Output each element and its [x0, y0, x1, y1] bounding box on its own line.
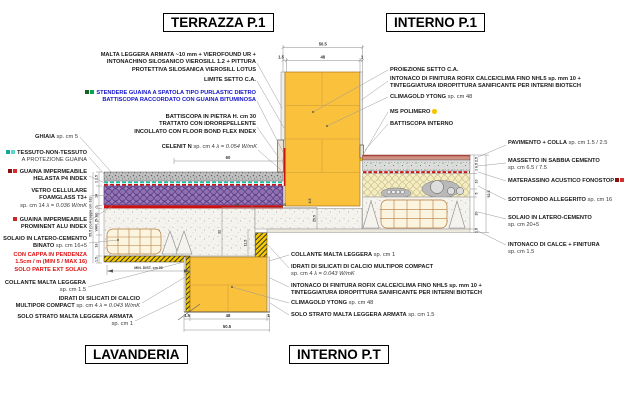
pipe: [456, 187, 463, 194]
label-idrati-pt: IDRATI DI SILICATI DI CALCIO MULTIPOR CO…: [291, 264, 433, 279]
dim-left-b: 14: [95, 194, 99, 198]
label-stendere-guaina: STENDERE GUAINA A SPATOLA TIPO PURLASTIC…: [85, 90, 256, 105]
ytong-wall-lower: [190, 257, 267, 312]
green-marker-icon: [85, 90, 89, 94]
label-intonaco-finitura-p1: INTONACO DI FINITURA ROFIX CALCE/CLIMA F…: [390, 76, 581, 91]
label-climagold-pt: CLIMAGOLD YTONG sp. cm 48: [291, 300, 373, 307]
dim-slab-f: 4.5: [308, 199, 312, 204]
multipor-under-slab: [104, 256, 190, 262]
label-solaio-binato: SOLAIO IN LATERO-CEMENTO BINATO sp. cm 1…: [3, 236, 87, 251]
red-marker-icon: [13, 169, 17, 173]
label-ms-polimero: MS POLIMERO: [390, 109, 437, 116]
dim-celenit-width: 60: [226, 155, 231, 160]
dim-slab-d: 11.5: [243, 240, 247, 247]
intonaco-strip-lower: [267, 257, 270, 312]
green-marker-icon: [90, 90, 94, 94]
dim-left-e: 16: [95, 244, 99, 248]
label-guaina-helasta: GUAINA IMPERMEABILE HELASTA P4 INDEX: [8, 169, 87, 184]
label-pavimento-colla: PAVIMENTO + COLLA sp. cm 1.5 / 2.5: [508, 140, 607, 147]
intonaco-esterno-strip: [281, 72, 285, 140]
label-massetto: MASSETTO IN SABBIA CEMENTO sp. cm 6.5 / …: [508, 158, 600, 173]
label-sottofondo: SOTTOFONDO ALLEGERITO sp. cm 16: [508, 197, 612, 204]
dim-top-b: 48: [320, 55, 325, 60]
label-celenit: CELENIT N sp. cm 4 λ = 0.054 W/mK: [162, 144, 257, 151]
pipe: [447, 187, 454, 194]
dim-right-c: 5: [475, 193, 479, 195]
label-vetro-cellulare: VETRO CELLULARE FOAMGLASS T3+ sp. cm 14 …: [20, 188, 87, 210]
dim-right-a: 1 6.5 2.5: [475, 157, 479, 171]
label-collante-lavanderia: COLLANTE MALTA LEGGERA sp. cm 1.5: [5, 280, 86, 295]
dim-right-total: 52.5: [487, 191, 491, 198]
title-terrazza-p1: TERRAZZA P.1: [163, 13, 274, 32]
red-marker-icon: [13, 217, 17, 221]
dim-top-total: 50.5: [319, 42, 328, 47]
multipor-corner-strip: [256, 233, 268, 257]
label-solo-strato-lavanderia: SOLO STRATO MALTA LEGGERA ARMATA sp. cm …: [17, 314, 133, 329]
dim-left-c: 1: [95, 206, 99, 208]
dim-slab-a: 25: [235, 203, 239, 207]
label-collante-pt: COLLANTE MALTA LEGGERA sp. cm 1: [291, 252, 395, 259]
label-battiscopa-interno: BATTISCOPA INTERNO: [390, 121, 453, 128]
ceiling-intonaco: [267, 229, 470, 233]
construction-detail-sheet: 50.5 1.5 48 1 60 55.5 (con cappa cm 16) …: [0, 0, 630, 400]
dim-left-a: 1 1.5: [95, 175, 99, 183]
dim-left-d: VAR. (5-16): [95, 212, 99, 232]
label-cappa-pendenza: CON CAPPA IN PENDENZA 1.5cm / m (MIN 5 /…: [13, 252, 87, 274]
red-marker-icon: [620, 178, 624, 182]
dim-slab-e: 25.5: [312, 215, 316, 222]
guaina-purlastic: [284, 148, 286, 186]
label-tessuto-non-tessuto: TESSUTO-NON-TESSUTO A PROTEZIONE GUAINA: [5, 150, 87, 165]
dim-slab-c: 32: [217, 230, 221, 234]
teal-marker-icon: [11, 150, 15, 154]
dim-bot-total: 50.5: [223, 324, 232, 329]
label-solaio-pt: SOLAIO IN LATERO-CEMENTO sp. cm 20+5: [508, 215, 592, 230]
yellow-marker-icon: [432, 109, 437, 114]
red-marker-icon: [8, 169, 12, 173]
dim-slab-b: 35: [282, 203, 286, 207]
label-climagold-p1: CLIMAGOLD YTONG sp. cm 48: [390, 94, 472, 101]
dim-min-dist: MIN. DIST. cm 90: [134, 266, 163, 270]
label-materassino: MATERASSINO ACUSTICO FONOSTOP: [508, 178, 624, 185]
upper-wall: [278, 72, 364, 206]
dim-right-d: 20: [475, 212, 479, 216]
label-solo-strato-pt: SOLO STRATO MALTA LEGGERA ARMATA sp. cm …: [291, 312, 434, 319]
dim-bot-c: 1: [267, 313, 270, 318]
terrazza-floor-layers: [104, 172, 283, 208]
gravel-layer: [104, 172, 283, 181]
intonaco-interno-strip: [360, 72, 363, 145]
label-limite-setto: LIMITE SETTO C.A.: [204, 77, 256, 84]
dim-right-b: 10: [475, 180, 479, 184]
label-idrati-lavanderia: IDRATI DI SILICATI DI CALCIO MULTIPOR CO…: [16, 296, 140, 311]
multipor-wall-strip: [186, 257, 190, 312]
label-intonaco-pt: INTONACO DI FINITURA ROFIX CALCE/CLIMA F…: [291, 283, 482, 298]
pipe: [431, 181, 444, 194]
label-battiscopa-pietra: BATTISCOPA IN PIETRA H. cm 30 TRATTATO C…: [134, 114, 256, 136]
collante-strip: [184, 257, 186, 312]
dim-left-total: 55.5 (con cappa cm 16): [89, 197, 93, 237]
dim-top-a: 1.5: [278, 55, 284, 60]
massetto-layer: [363, 160, 471, 171]
dim-bot-b: 48: [226, 313, 231, 318]
label-guaina-prominent: GUAINA IMPERMEABILE PROMINENT ALU INDEX: [13, 217, 87, 232]
dim-top-c: 1: [361, 55, 364, 60]
label-proiezione-setto: PROIEZIONE SETTO C.A.: [390, 67, 458, 74]
dim-left-f: 1.5: [95, 257, 99, 262]
red-marker-icon: [615, 178, 619, 182]
dim-bot-a: 1.5: [184, 313, 190, 318]
title-interno-pt: INTERNO P.T: [289, 345, 389, 364]
dim-right-e: 1.5: [475, 228, 479, 233]
title-interno-p1: INTERNO P.1: [386, 13, 485, 32]
battiscopa-pietra: [278, 140, 284, 172]
foamglass-layer: [104, 186, 283, 205]
label-ghiaia: GHIAIA sp. cm 5: [35, 134, 78, 141]
label-malta-leggera-armata: MALTA LEGGERA ARMATA ~10 mm + VIEROFOUND…: [101, 52, 256, 74]
guaina-prominent-layer: [104, 205, 283, 208]
label-intonaco-calce: INTONACO DI CALCE + FINITURA sp. cm 1.5: [508, 242, 600, 257]
title-lavanderia: LAVANDERIA: [85, 345, 188, 364]
teal-marker-icon: [6, 150, 10, 154]
